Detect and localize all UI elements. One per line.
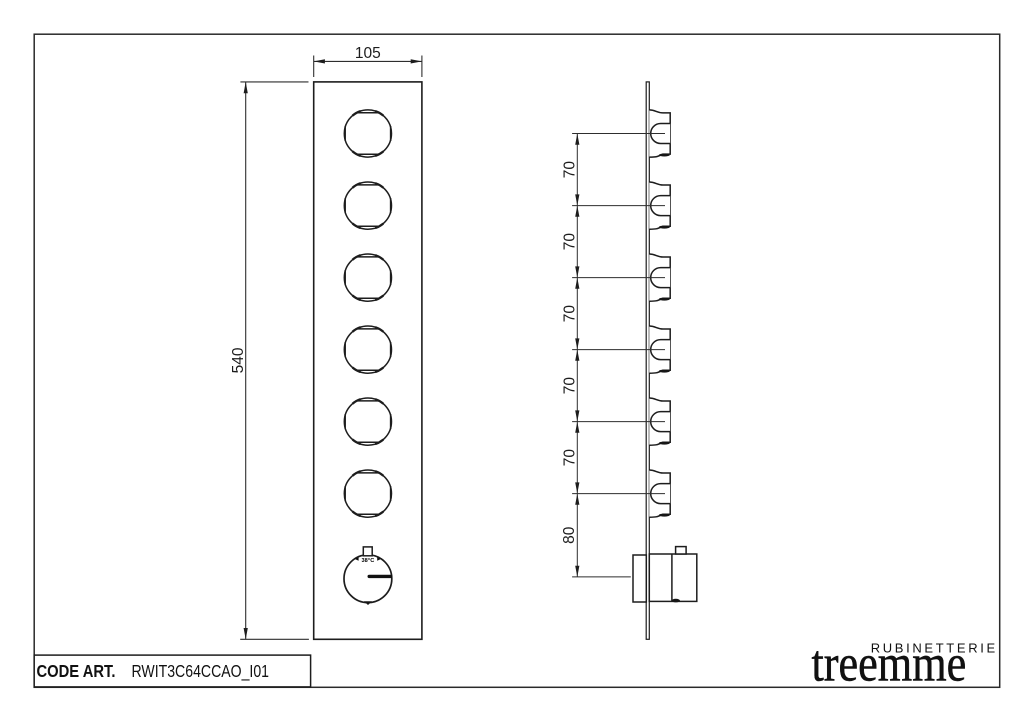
svg-text:540: 540 bbox=[230, 347, 247, 373]
svg-text:70: 70 bbox=[562, 377, 579, 395]
svg-text:RWIT3C64CCAO_I01: RWIT3C64CCAO_I01 bbox=[132, 661, 270, 681]
svg-text:105: 105 bbox=[355, 45, 381, 62]
svg-text:CODE ART.: CODE ART. bbox=[37, 661, 116, 681]
svg-text:70: 70 bbox=[562, 161, 579, 179]
svg-text:38°C: 38°C bbox=[361, 558, 374, 564]
svg-text:treemme: treemme bbox=[812, 636, 967, 693]
svg-text:70: 70 bbox=[562, 305, 579, 323]
svg-text:80: 80 bbox=[561, 526, 578, 544]
svg-text:70: 70 bbox=[562, 449, 579, 467]
svg-text:70: 70 bbox=[562, 233, 579, 251]
